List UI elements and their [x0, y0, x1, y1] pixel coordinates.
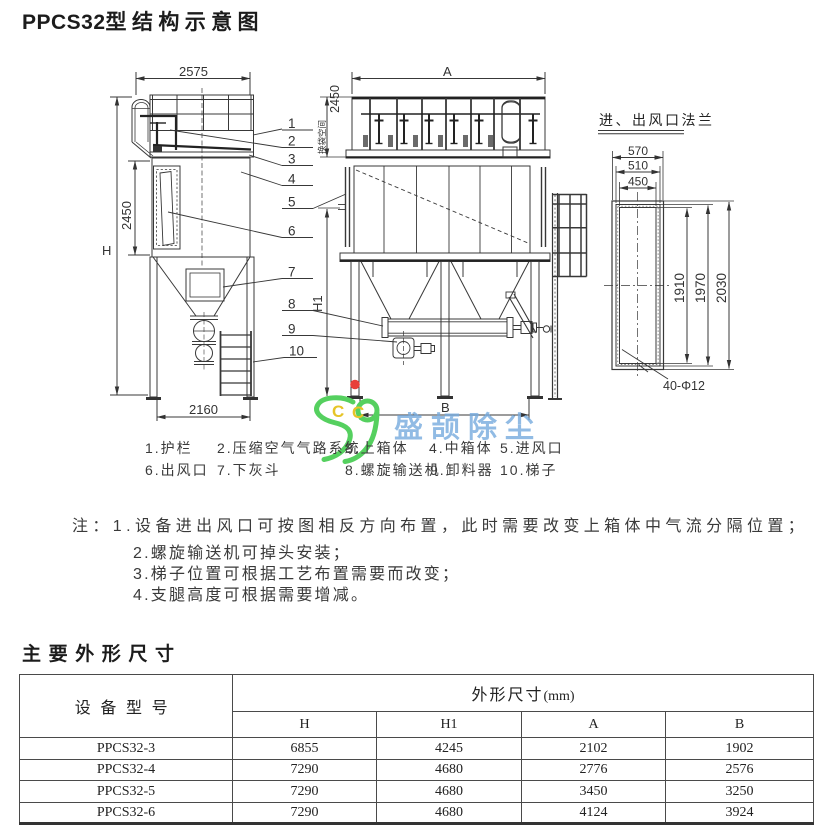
- svg-text:6: 6: [288, 224, 296, 239]
- svg-text:2450: 2450: [119, 201, 134, 230]
- svg-text:3: 3: [288, 152, 296, 167]
- svg-text:C: C: [352, 403, 364, 422]
- svg-text:1970: 1970: [693, 273, 708, 303]
- svg-text:9: 9: [288, 322, 296, 337]
- svg-text:2575: 2575: [179, 64, 208, 79]
- svg-text:进、出风口法兰: 进、出风口法兰: [599, 112, 715, 128]
- svg-text:2450: 2450: [328, 85, 342, 113]
- svg-text:1910: 1910: [672, 273, 687, 303]
- svg-text:450: 450: [628, 175, 648, 189]
- svg-text:8: 8: [288, 297, 296, 312]
- svg-text:2030: 2030: [714, 273, 729, 303]
- svg-text:510: 510: [628, 159, 648, 173]
- svg-text:2: 2: [288, 134, 296, 149]
- svg-text:4: 4: [288, 172, 296, 187]
- svg-text:C: C: [332, 402, 344, 421]
- svg-text:H1: H1: [310, 295, 325, 312]
- svg-text:A: A: [443, 64, 452, 79]
- svg-text:2160: 2160: [189, 402, 218, 417]
- svg-text:40-Φ12: 40-Φ12: [663, 379, 705, 393]
- svg-text:5: 5: [288, 195, 296, 210]
- svg-text:7: 7: [288, 265, 296, 280]
- svg-text:H: H: [102, 243, 111, 258]
- svg-text:570: 570: [628, 144, 648, 158]
- svg-text:10: 10: [289, 344, 304, 359]
- svg-text:换袋空间: 换袋空间: [317, 120, 327, 154]
- svg-text:1: 1: [288, 116, 296, 131]
